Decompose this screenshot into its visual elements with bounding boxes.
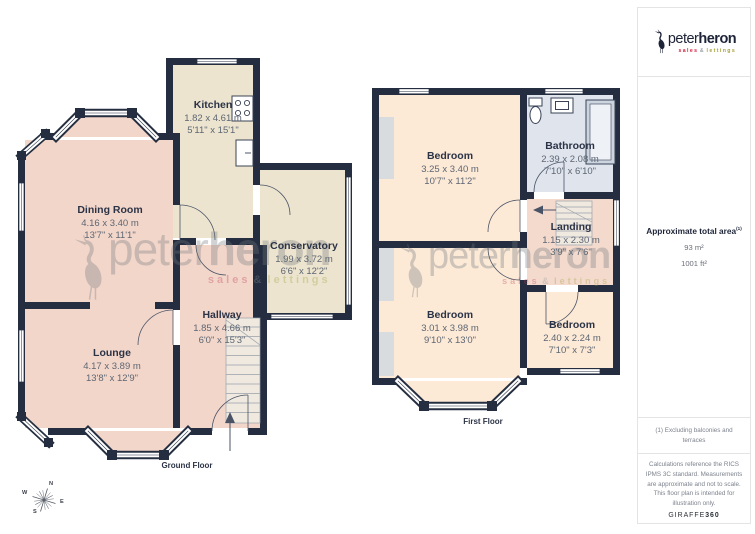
room-label-bathroom: Bathroom 2.39 x 2.08 m 7'10" x 6'10": [541, 140, 599, 179]
room-name: Bedroom: [421, 150, 479, 164]
room-dimensions-metric: 1.85 x 4.66 m: [193, 323, 251, 336]
room-name: Lounge: [83, 347, 141, 361]
heron-logo-icon: [652, 29, 668, 55]
bathroom-sink-icon: [551, 98, 573, 113]
room-label-bedroom-1: Bedroom 3.25 x 3.40 m 10'7" x 11'2": [421, 150, 479, 189]
room-dimensions-imperial: 3'9" x 7'6": [542, 247, 600, 260]
footnote-marker: (1): [736, 226, 742, 231]
room-label-kitchen: Kitchen 1.82 x 4.61 m 5'11" x 15'1": [184, 99, 242, 138]
compass-e: E: [60, 499, 64, 505]
room-dimensions-imperial: 7'10" x 6'10": [541, 166, 599, 179]
brand-logo: peterheron sales & lettings: [637, 7, 751, 77]
room-label-bedroom-2: Bedroom 3.01 x 3.98 m 9'10" x 13'0": [421, 309, 479, 348]
room-dimensions-imperial: 6'0" x 15'3": [193, 335, 251, 348]
compass-s: S: [33, 509, 37, 515]
room-name: Bathroom: [541, 140, 599, 154]
room-name: Hallway: [193, 309, 251, 323]
room-dimensions-metric: 1.99 x 3.72 m: [270, 254, 338, 267]
compass-w: W: [22, 490, 27, 496]
room-label-landing: Landing 1.15 x 2.30 m 3'9" x 7'6": [542, 221, 600, 260]
room-dimensions-metric: 4.16 x 3.40 m: [77, 218, 142, 231]
total-area-m2: 93 m²: [684, 243, 703, 252]
room-name: Bedroom: [543, 319, 601, 333]
giraffe360-credit: GIRAFFE360: [668, 512, 719, 519]
room-dimensions-imperial: 10'7" x 11'2": [421, 176, 479, 189]
room-label-hallway: Hallway 1.85 x 4.66 m 6'0" x 15'3": [193, 309, 251, 348]
brand-name: peterheron: [668, 31, 736, 47]
room-label-lounge: Lounge 4.17 x 3.89 m 13'8" x 12'9": [83, 347, 141, 386]
room-dimensions-imperial: 7'10" x 7'3": [543, 345, 601, 358]
room-dimensions-imperial: 13'8" x 12'9": [83, 373, 141, 386]
room-dimensions-imperial: 5'11" x 15'1": [184, 125, 242, 138]
room-name: Kitchen: [184, 99, 242, 113]
room-dimensions-metric: 1.15 x 2.30 m: [542, 235, 600, 248]
brand-tagline: sales & lettings: [668, 48, 736, 54]
first-floor-label: First Floor: [463, 417, 503, 426]
room-dimensions-imperial: 9'10" x 13'0": [421, 335, 479, 348]
disclaimer-text: Calculations reference the RICS IPMS 3C …: [645, 460, 743, 509]
room-name: Conservatory: [270, 240, 338, 254]
room-name: Bedroom: [421, 309, 479, 323]
footnote-panel: (1) Excluding balconies and terraces: [637, 417, 751, 454]
room-label-bedroom-3: Bedroom 2.40 x 2.24 m 7'10" x 7'3": [543, 319, 601, 358]
room-name: Landing: [542, 221, 600, 235]
room-dimensions-metric: 4.17 x 3.89 m: [83, 361, 141, 374]
footnote-text: (1) Excluding balconies and terraces: [646, 426, 742, 446]
room-dimensions-metric: 2.40 x 2.24 m: [543, 333, 601, 346]
room-dimensions-metric: 2.39 x 2.08 m: [541, 154, 599, 167]
room-dimensions-imperial: 6'6" x 12'2": [270, 266, 338, 279]
room-dimensions-metric: 3.01 x 3.98 m: [421, 323, 479, 336]
room-dimensions-metric: 1.82 x 4.61 m: [184, 113, 242, 126]
compass-n: N: [49, 481, 53, 487]
info-sidebar: peterheron sales & lettings Approximate …: [637, 8, 751, 524]
total-area-title: Approximate total area(1): [646, 226, 742, 236]
room-dimensions-imperial: 13'7" x 11'1": [77, 230, 142, 243]
room-label-dining-room: Dining Room 4.16 x 3.40 m 13'7" x 11'1": [77, 204, 142, 243]
disclaimer-panel: Calculations reference the RICS IPMS 3C …: [637, 453, 751, 524]
total-area-panel: Approximate total area(1) 93 m² 1001 ft²: [637, 76, 751, 418]
room-label-conservatory: Conservatory 1.99 x 3.72 m 6'6" x 12'2": [270, 240, 338, 279]
floorplan-page: N E S W peterheron sales & lettings pete…: [0, 0, 755, 534]
room-name: Dining Room: [77, 204, 142, 218]
ground-floor-label: Ground Floor: [161, 461, 212, 470]
room-dimensions-metric: 3.25 x 3.40 m: [421, 164, 479, 177]
toilet-icon: [529, 98, 542, 124]
total-area-ft2: 1001 ft²: [681, 259, 707, 268]
